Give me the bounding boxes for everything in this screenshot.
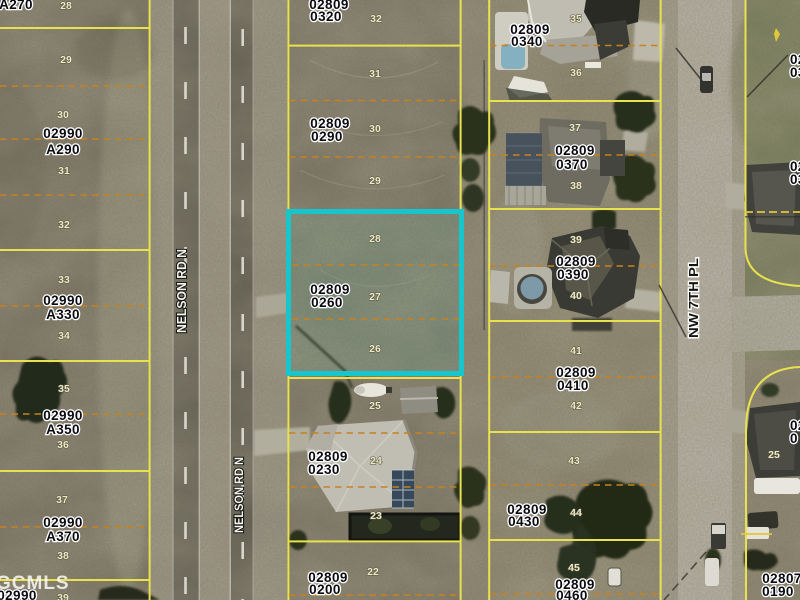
svg-text:29: 29: [369, 175, 381, 187]
svg-text:A290: A290: [46, 142, 80, 157]
svg-text:40: 40: [570, 290, 582, 302]
svg-text:NELSON RD N: NELSON RD N: [175, 249, 189, 333]
svg-text:34: 34: [58, 330, 70, 342]
svg-text:29: 29: [60, 54, 72, 66]
svg-text:22: 22: [367, 566, 379, 578]
svg-text:0200: 0200: [309, 582, 341, 597]
svg-text:0430: 0430: [508, 514, 540, 529]
svg-text:A370: A370: [46, 529, 80, 544]
svg-text:42: 42: [570, 400, 582, 412]
svg-text:32: 32: [58, 219, 70, 231]
svg-text:0370: 0370: [556, 157, 588, 172]
svg-text:02990: 02990: [43, 126, 83, 141]
svg-text:A350: A350: [46, 422, 80, 437]
svg-text:0320: 0320: [310, 9, 342, 24]
svg-text:37: 37: [56, 494, 68, 506]
svg-text:33: 33: [58, 274, 70, 286]
svg-text:03: 03: [790, 65, 800, 80]
svg-text:43: 43: [568, 455, 580, 467]
svg-text:A330: A330: [46, 307, 80, 322]
svg-text:02990: 02990: [43, 515, 83, 530]
svg-text:38: 38: [570, 180, 582, 192]
svg-text:GCMLS: GCMLS: [0, 573, 70, 594]
svg-text:31: 31: [369, 68, 381, 80]
svg-text:26: 26: [369, 343, 381, 355]
svg-text:03: 03: [790, 172, 800, 187]
svg-text:45: 45: [568, 562, 580, 574]
svg-text:25: 25: [768, 449, 780, 461]
svg-text:0290: 0290: [311, 129, 343, 144]
svg-text:28: 28: [369, 233, 381, 245]
svg-text:36: 36: [570, 67, 582, 79]
svg-text:41: 41: [570, 345, 582, 357]
svg-text:0390: 0390: [557, 267, 589, 282]
svg-text:23: 23: [370, 510, 382, 522]
svg-text:30: 30: [369, 123, 381, 135]
svg-text:02990: 02990: [43, 408, 83, 423]
svg-text:36: 36: [57, 439, 69, 451]
svg-text:38: 38: [57, 550, 69, 562]
svg-text:0410: 0410: [557, 378, 589, 393]
svg-text:0190: 0190: [762, 584, 794, 599]
svg-text:0340: 0340: [511, 34, 543, 49]
svg-text:NW 7TH PL: NW 7TH PL: [686, 258, 701, 338]
svg-text:44: 44: [570, 507, 582, 519]
svg-text:NELSON RD N: NELSON RD N: [232, 457, 246, 533]
svg-text:0260: 0260: [311, 295, 343, 310]
svg-text:30: 30: [57, 109, 69, 121]
svg-text:27: 27: [369, 291, 381, 303]
svg-text:35: 35: [570, 13, 582, 25]
svg-text:0230: 0230: [308, 462, 340, 477]
svg-text:A270: A270: [0, 0, 33, 12]
svg-text:28: 28: [60, 0, 72, 12]
svg-text:02990: 02990: [43, 293, 83, 308]
svg-text:37: 37: [569, 122, 581, 134]
svg-text:02809: 02809: [555, 143, 595, 158]
svg-text:0: 0: [790, 431, 798, 446]
svg-text:24: 24: [370, 455, 382, 467]
svg-text:25: 25: [369, 400, 381, 412]
svg-text:31: 31: [58, 165, 70, 177]
svg-text:0460: 0460: [556, 588, 588, 600]
svg-text:32: 32: [370, 13, 382, 25]
svg-text:39: 39: [570, 234, 582, 246]
svg-text:35: 35: [58, 383, 70, 395]
